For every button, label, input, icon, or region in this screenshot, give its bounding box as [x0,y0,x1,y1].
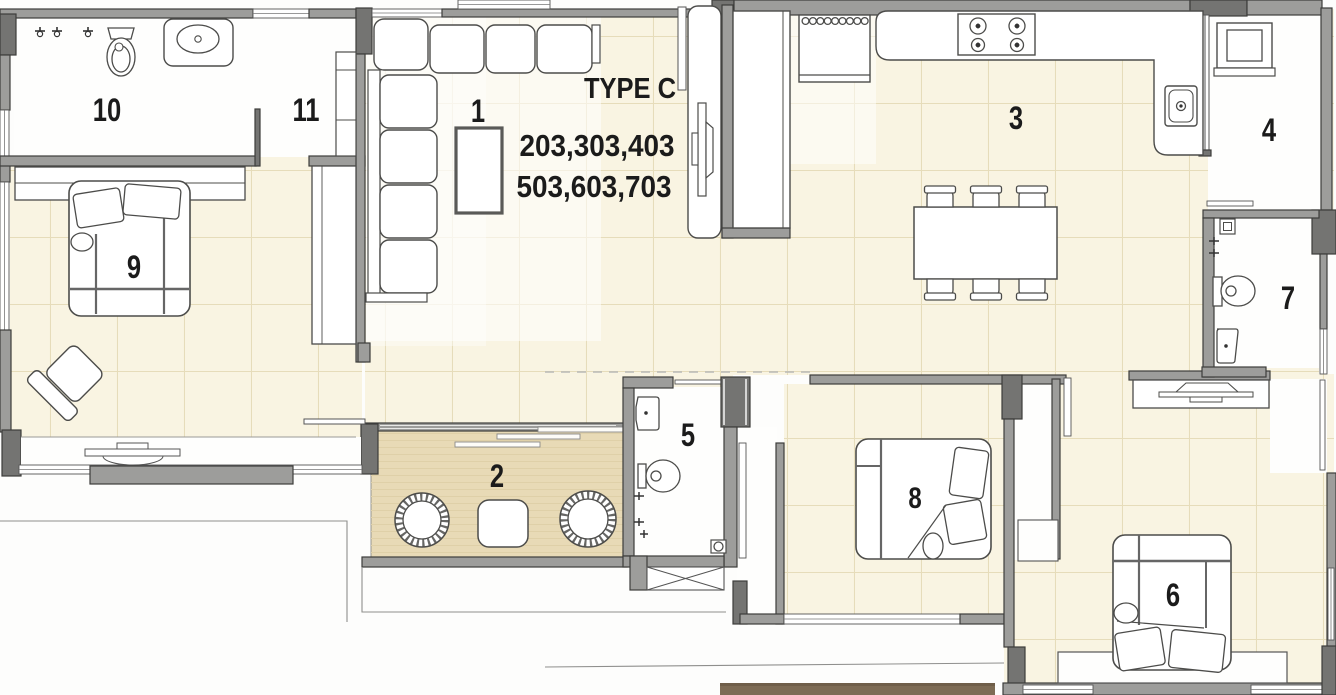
svg-text:1: 1 [471,94,485,129]
svg-text:7: 7 [1281,281,1295,316]
svg-text:10: 10 [93,93,121,128]
svg-text:11: 11 [292,93,319,128]
svg-text:8: 8 [908,480,921,514]
svg-text:5: 5 [681,418,695,453]
svg-text:TYPE C: TYPE C [584,71,676,104]
svg-text:4: 4 [1262,113,1276,148]
svg-text:9: 9 [127,250,141,285]
svg-text:503,603,703: 503,603,703 [516,170,671,205]
svg-text:203,303,403: 203,303,403 [519,129,674,164]
svg-text:3: 3 [1009,101,1023,136]
svg-text:2: 2 [490,459,504,494]
svg-text:6: 6 [1166,578,1180,613]
